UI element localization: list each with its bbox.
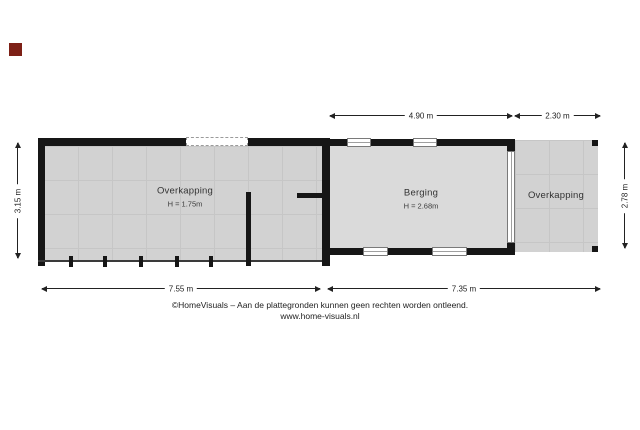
- room-height: H = 1.75m: [157, 199, 213, 210]
- website-text: www.home-visuals.nl: [0, 311, 640, 321]
- floor-plan-page: { "marker": { "style": "background:#7d20…: [0, 0, 640, 430]
- corner-post-top-right: [592, 140, 598, 146]
- left-side-wall: [38, 138, 45, 266]
- room-height: H = 2.68m: [404, 201, 439, 212]
- top-wall-opening: [186, 137, 248, 146]
- divider-wall: [322, 138, 330, 266]
- dimension-value: 2.78 m: [621, 178, 630, 212]
- post: [103, 256, 107, 267]
- interior-partition-wall: [246, 192, 251, 266]
- disclaimer-text: ©HomeVisuals – Aan de plattegronden kunn…: [0, 300, 640, 310]
- interior-wall-stub: [297, 193, 322, 198]
- room-name: Overkapping: [528, 189, 584, 203]
- post: [209, 256, 213, 267]
- dimension-right-height: 2.78 m: [624, 143, 625, 248]
- dimension-left-height: 3.15 m: [17, 143, 18, 258]
- dimension-value: 4.90 m: [405, 112, 437, 121]
- berging-bottom-wall: [330, 248, 515, 255]
- left-overkapping-label: Overkapping H = 1.75m: [157, 184, 213, 210]
- dimension-bottom-right: 7.35 m: [328, 288, 600, 289]
- dimension-bottom-left: 7.55 m: [42, 288, 320, 289]
- post: [139, 256, 143, 267]
- red-square-marker: [9, 43, 22, 56]
- dimension-value: 2.30 m: [541, 112, 573, 121]
- post: [175, 256, 179, 267]
- dimension-value: 7.35 m: [448, 285, 480, 294]
- corner-post-bottom-right: [592, 246, 598, 252]
- right-overkapping-label: Overkapping: [528, 189, 584, 203]
- room-name: Overkapping: [157, 184, 213, 198]
- berging-top-window-2: [413, 138, 437, 147]
- berging-right-wall-bottom-stub: [507, 242, 515, 255]
- post: [69, 256, 73, 267]
- left-open-edge: [38, 260, 330, 262]
- dimension-value: 3.15 m: [14, 183, 23, 217]
- berging-bottom-window-1: [363, 247, 388, 256]
- berging-bottom-window-2: [432, 247, 467, 256]
- berging-top-window-1: [347, 138, 371, 147]
- dimension-top-right-overkapping: 2.30 m: [515, 115, 600, 116]
- dimension-top-berging: 4.90 m: [330, 115, 512, 116]
- berging-label: Berging H = 2.68m: [404, 186, 439, 212]
- dimension-value: 7.55 m: [165, 285, 197, 294]
- berging-right-window: [507, 151, 515, 243]
- left-top-wall: [38, 138, 330, 146]
- room-name: Berging: [404, 186, 439, 200]
